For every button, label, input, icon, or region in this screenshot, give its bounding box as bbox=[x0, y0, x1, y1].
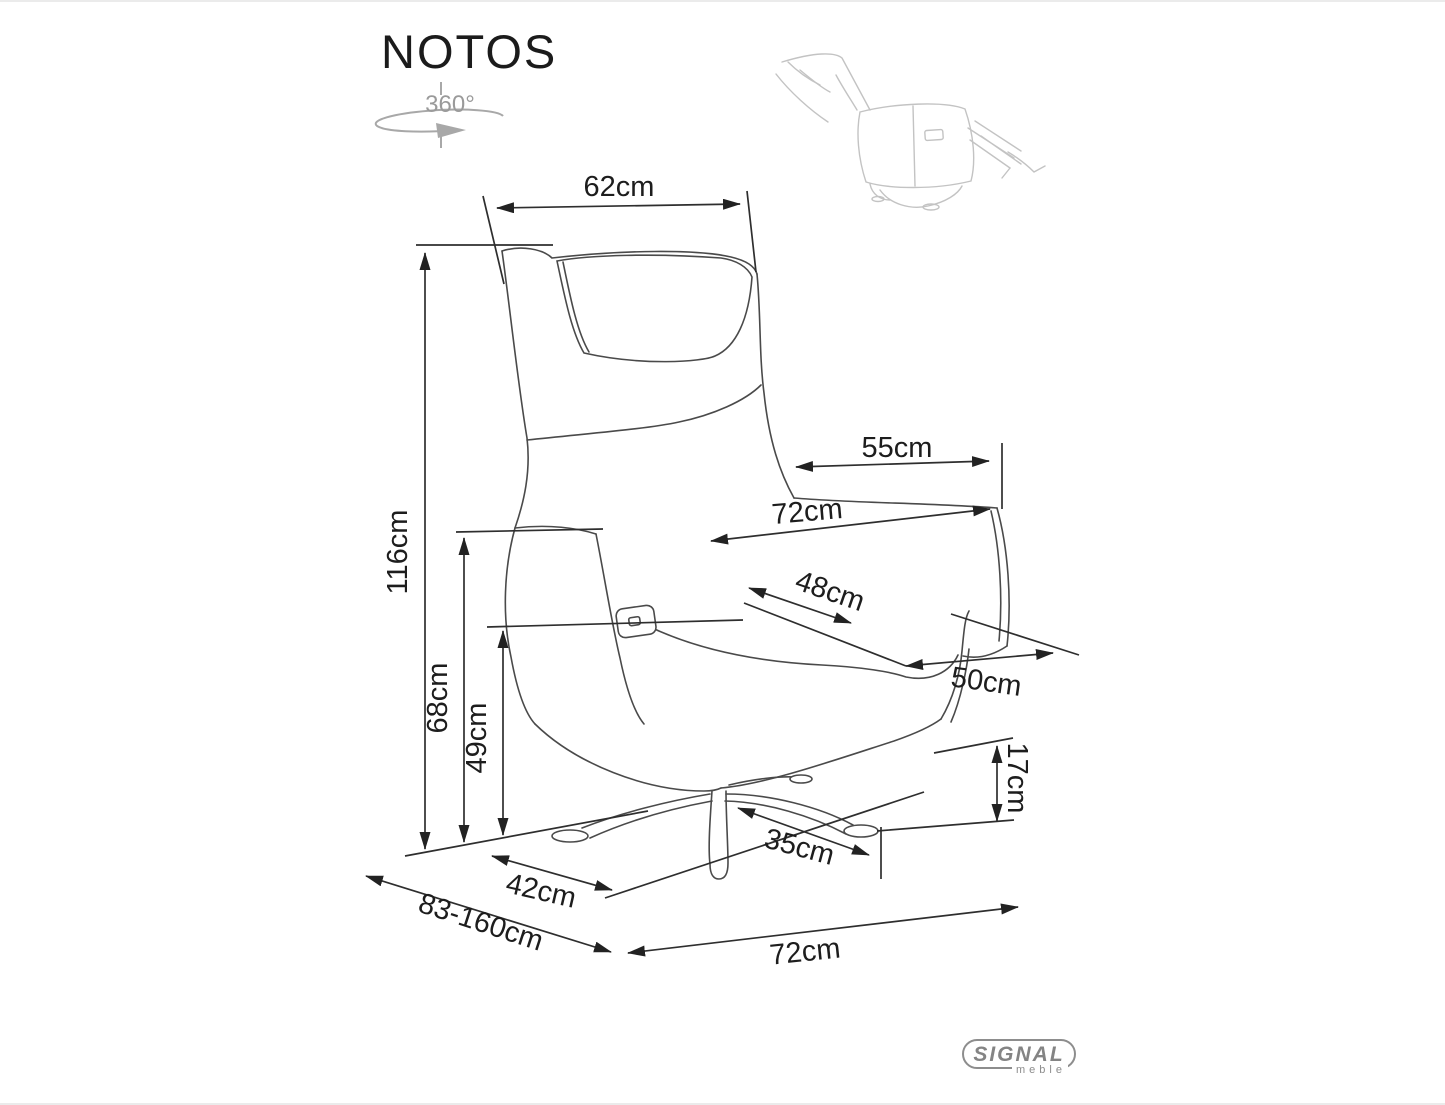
reclined-chair-sketch bbox=[776, 54, 1045, 210]
floor-baseline-left bbox=[405, 811, 648, 856]
seat-bottom-left-curve bbox=[535, 724, 721, 791]
dim-armrest-length-label: 55cm bbox=[862, 432, 933, 464]
dim-seat-height-label: 49cm bbox=[461, 703, 493, 774]
seat-cushion-front-edge bbox=[648, 626, 958, 678]
top-edge-divider bbox=[0, 0, 1445, 2]
product-dimension-diagram: NOTOS 360° bbox=[0, 0, 1445, 1105]
dim-base-front-label: 42cm bbox=[503, 868, 579, 915]
recline-control-remote bbox=[615, 604, 657, 638]
sketch-pillow-seams bbox=[800, 70, 857, 110]
base-foot-right bbox=[844, 825, 878, 837]
dim-seat-height-ref bbox=[487, 620, 743, 627]
dim-top-width-label: 62cm bbox=[584, 171, 655, 203]
backrest-lower-seam bbox=[527, 385, 761, 440]
dim-clearance-refs bbox=[877, 738, 1014, 831]
backrest-left-edge bbox=[502, 251, 528, 528]
sketch-backrest-edge2 bbox=[776, 74, 828, 122]
dim-overall-width-label: 72cm bbox=[768, 932, 842, 971]
brand-sub: meble bbox=[1016, 1064, 1066, 1076]
dim-seat-width-label: 48cm bbox=[791, 565, 868, 618]
main-chair-drawing bbox=[502, 248, 1009, 879]
dim-seat-depth-extensions bbox=[744, 603, 1079, 666]
dim-clearance-label: 17cm bbox=[1001, 743, 1033, 814]
backrest-right-edge bbox=[757, 274, 794, 498]
sketch-backrest-edge bbox=[782, 54, 870, 110]
rotation-360-label: 360° bbox=[425, 91, 475, 118]
dim-armrest-height-label: 68cm bbox=[422, 663, 454, 734]
sketch-footrest-rails bbox=[968, 121, 1021, 168]
armrest-bottom-edge bbox=[963, 646, 1007, 657]
remote-button bbox=[629, 616, 641, 625]
base-foot-left bbox=[552, 830, 588, 842]
brand-logo: SIGNAL meble bbox=[963, 1040, 1075, 1076]
armrest-inner-edge bbox=[991, 511, 1001, 641]
base-column bbox=[709, 791, 728, 879]
sketch-seat-body bbox=[858, 104, 974, 188]
base-foot-back bbox=[790, 775, 812, 783]
dimension-drawing-svg: NOTOS 360° bbox=[0, 0, 1445, 1105]
dim-width-armrests-line bbox=[711, 509, 990, 541]
seat-bottom-right-curve bbox=[721, 719, 941, 788]
dim-top-width-line bbox=[497, 204, 740, 208]
dim-height-label: 116cm bbox=[382, 510, 414, 595]
product-title: NOTOS bbox=[381, 25, 557, 78]
sketch-remote bbox=[925, 129, 944, 140]
dim-width-armrests-label: 72cm bbox=[770, 493, 843, 531]
armrest-right-edge bbox=[997, 508, 1009, 646]
sketch-center-seam bbox=[913, 106, 915, 186]
dim-base-leg-label: 35cm bbox=[761, 823, 838, 872]
rotation-arrowhead-icon bbox=[436, 123, 466, 138]
base-leg-left bbox=[582, 794, 712, 838]
